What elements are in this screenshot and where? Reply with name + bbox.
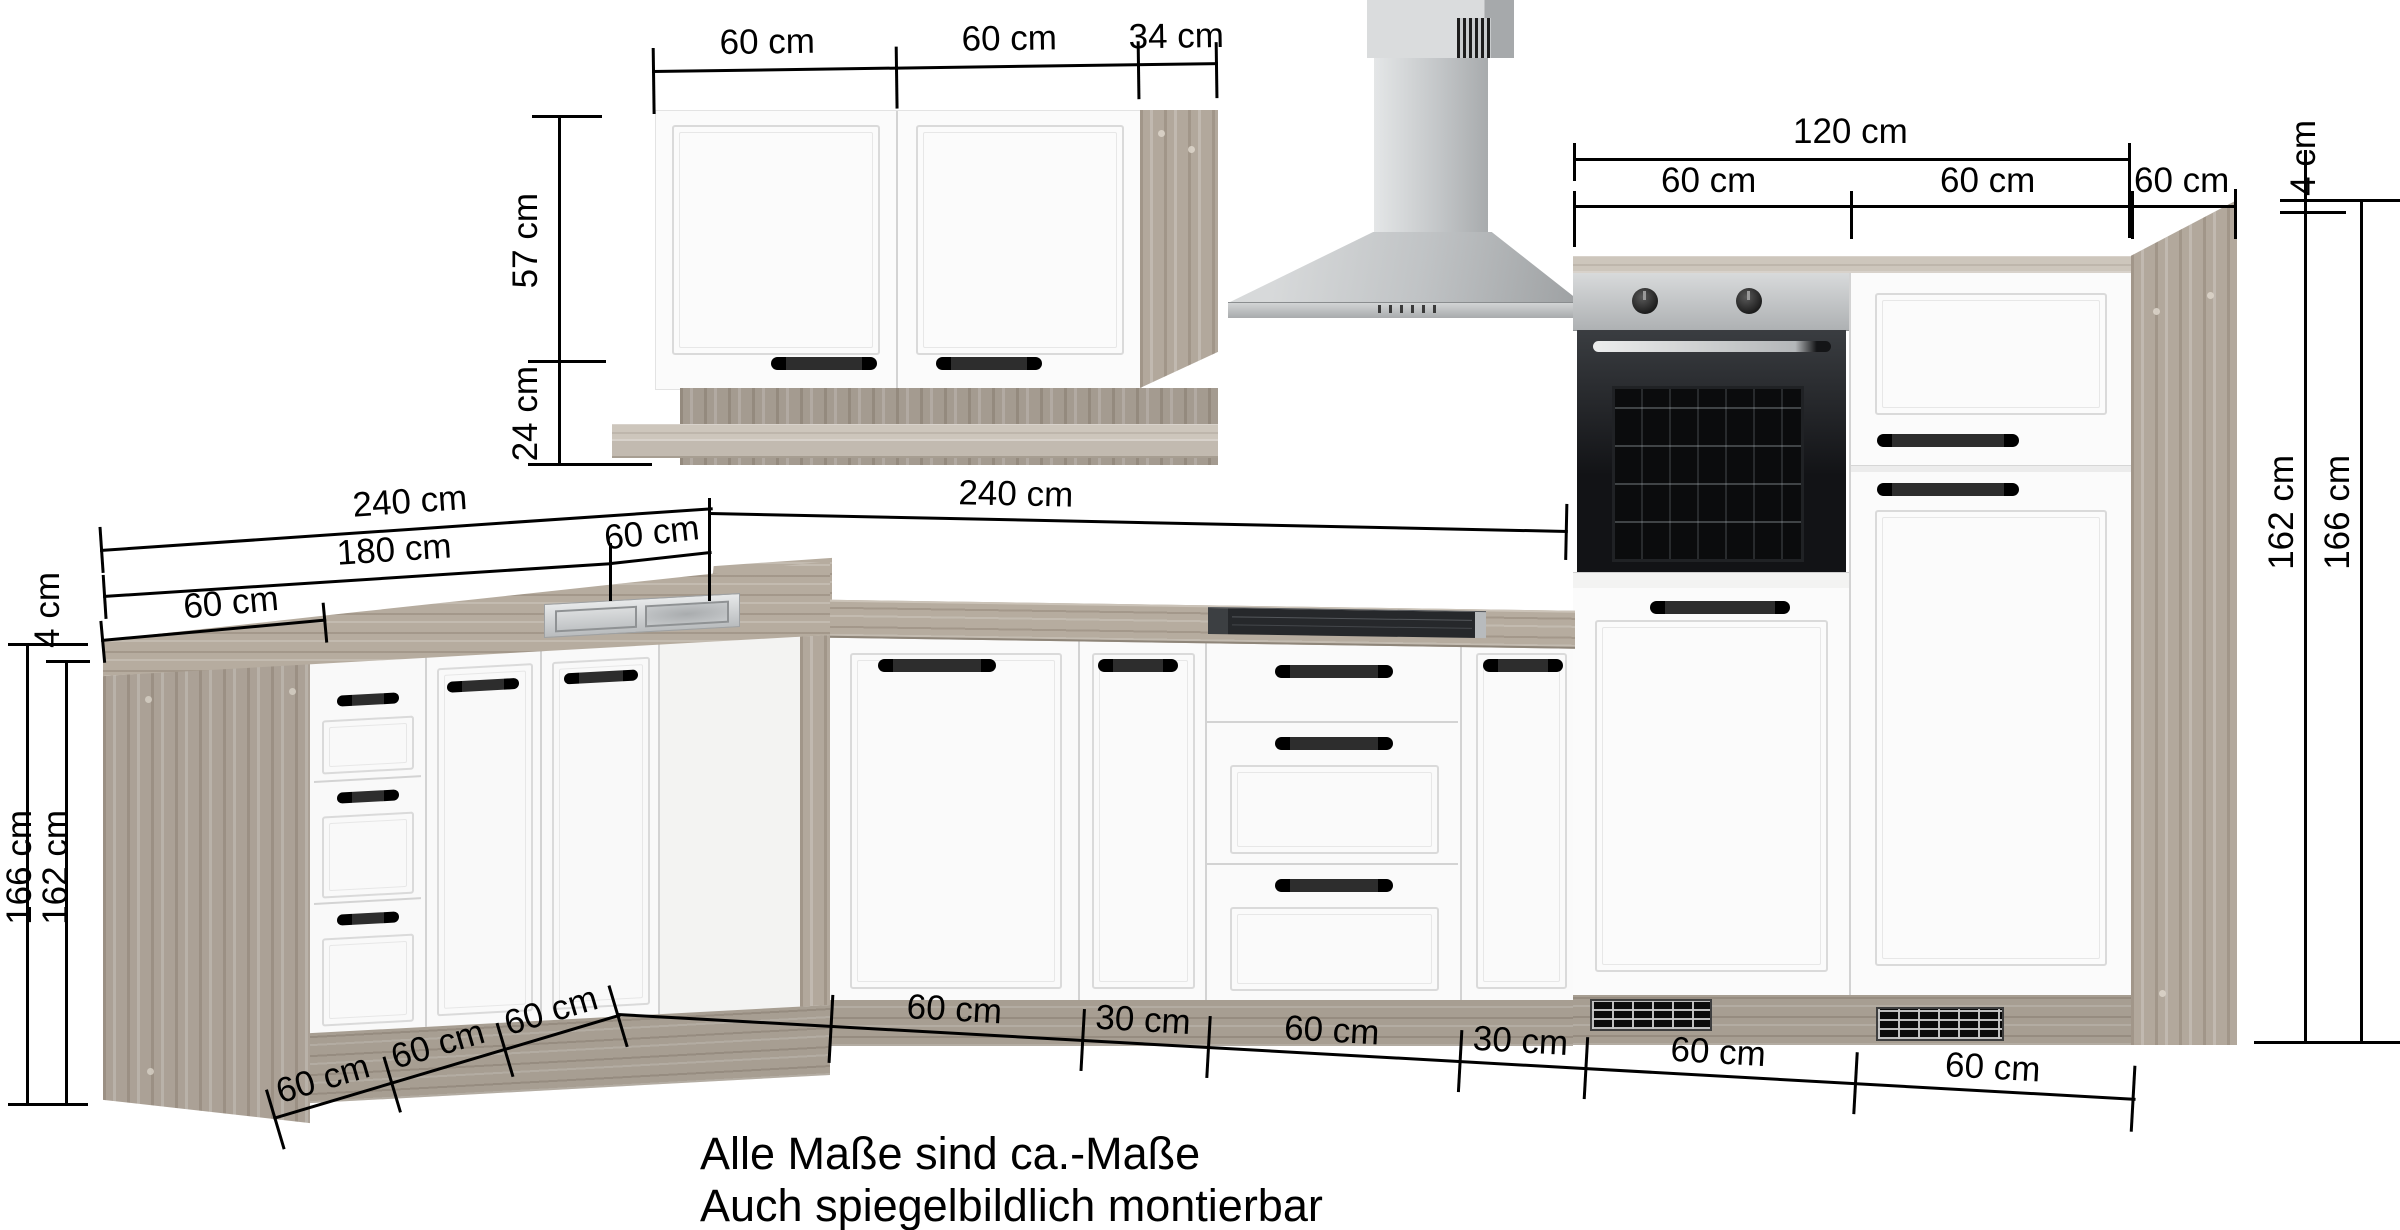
drawer-bottom-handle xyxy=(1275,879,1393,892)
base-door-60-handle xyxy=(878,659,996,672)
wall-cabinet-handle-right xyxy=(936,357,1042,370)
oven-window xyxy=(1612,386,1804,562)
hood-canopy xyxy=(1228,232,1582,303)
dim-label: 60 cm xyxy=(1661,161,1756,201)
dim-label: 60 cm xyxy=(182,579,281,627)
dim-label: 34 cm xyxy=(1128,16,1224,57)
dim-label: 120 cm xyxy=(1793,112,1908,152)
dim-label: 166 cm xyxy=(0,810,40,925)
wall-shelf-board-front xyxy=(612,441,1218,458)
dim-label: 24 cm xyxy=(506,366,546,461)
dim-label: 30 cm xyxy=(1094,998,1191,1043)
dim-label: 57 cm xyxy=(506,193,546,288)
dim-label: 60 cm xyxy=(1669,1030,1766,1075)
dim-wall-top: 60 cm 60 cm 34 cm xyxy=(652,62,1218,70)
hood-chimney-upper xyxy=(1367,0,1514,58)
dim-label: 30 cm xyxy=(1472,1019,1569,1064)
drawer-mid-handle xyxy=(1275,737,1393,750)
fridge-top-door-handle xyxy=(1877,434,2019,447)
oven-lower-strip xyxy=(1573,572,1850,589)
note-line-1: Alle Maße sind ca.-Maße xyxy=(700,1128,1200,1180)
drawer-top-handle xyxy=(1275,665,1393,678)
dim-label: 60 cm xyxy=(1283,1008,1380,1053)
dim-label: 162 cm xyxy=(36,810,76,925)
oven-cabinet-door-handle xyxy=(1650,601,1790,614)
dim-corner-width: 60 cm xyxy=(611,551,711,562)
oven-plinth-vent xyxy=(1590,999,1712,1031)
dim-right-run-total: 240 cm xyxy=(710,512,1568,530)
tall-unit-side-panel xyxy=(2131,200,2237,1045)
fridge-bottom-door-handle xyxy=(1877,483,2019,496)
oven-cabinet-door xyxy=(1573,588,1850,995)
dim-label: 4 cm xyxy=(28,572,68,648)
dim-label: 60 cm xyxy=(906,987,1003,1032)
dim-label: 60 cm xyxy=(719,22,815,63)
dim-label: 180 cm xyxy=(336,526,453,573)
oven-handle xyxy=(1593,341,1831,352)
dim-label: 240 cm xyxy=(351,478,468,526)
oven xyxy=(1577,330,1846,572)
hood-control-dots xyxy=(1378,305,1436,313)
wall-cabinet-door-left xyxy=(656,111,896,389)
base-door-30a-handle xyxy=(1098,659,1178,672)
oven-knob-right xyxy=(1736,288,1762,314)
wall-cabinet xyxy=(655,110,1142,390)
dim-label: 60 cm xyxy=(1940,161,2035,201)
base-right-fronts xyxy=(830,635,1573,1000)
dim-label: 60 cm xyxy=(961,18,1057,59)
fridge-plinth-vent xyxy=(1876,1007,2004,1041)
corner-filler-strip xyxy=(800,635,830,1007)
dim-label: 166 cm xyxy=(2318,455,2358,570)
wall-cabinet-door-right xyxy=(898,111,1141,389)
cooktop xyxy=(1208,607,1486,638)
wall-cabinet-side-panel xyxy=(1140,110,1218,388)
dim-label: 60 cm xyxy=(2134,161,2229,201)
dim-left-run-cabinets: 180 cm xyxy=(103,562,612,595)
base-door-30b-handle xyxy=(1483,659,1563,672)
hood-chimney-vent-grille xyxy=(1457,18,1491,58)
wall-cabinet-handle-left xyxy=(771,357,877,370)
dim-label: 4 cm xyxy=(2284,120,2324,196)
oven-knob-left xyxy=(1632,288,1658,314)
hood-chimney-lower xyxy=(1374,58,1488,234)
wall-shelf-board-top xyxy=(612,424,1218,441)
oven-control-panel xyxy=(1573,273,1850,331)
note-line-2: Auch spiegelbildlich montierbar xyxy=(700,1180,1323,1230)
dim-label: 60 cm xyxy=(1944,1045,2041,1090)
base-left-side-panel xyxy=(103,650,310,1125)
fridge-top-door xyxy=(1851,273,2131,465)
dim-label: 240 cm xyxy=(958,473,1074,515)
kitchen-dimension-diagram: 60 cm 60 cm 34 cm 57 cm 24 cm 120 cm 60 … xyxy=(0,0,2400,1230)
base-left-fronts xyxy=(310,635,830,1103)
extractor-hood xyxy=(1228,0,1582,317)
fridge-bottom-door xyxy=(1851,472,2131,995)
dim-label: 162 cm xyxy=(2262,455,2302,570)
